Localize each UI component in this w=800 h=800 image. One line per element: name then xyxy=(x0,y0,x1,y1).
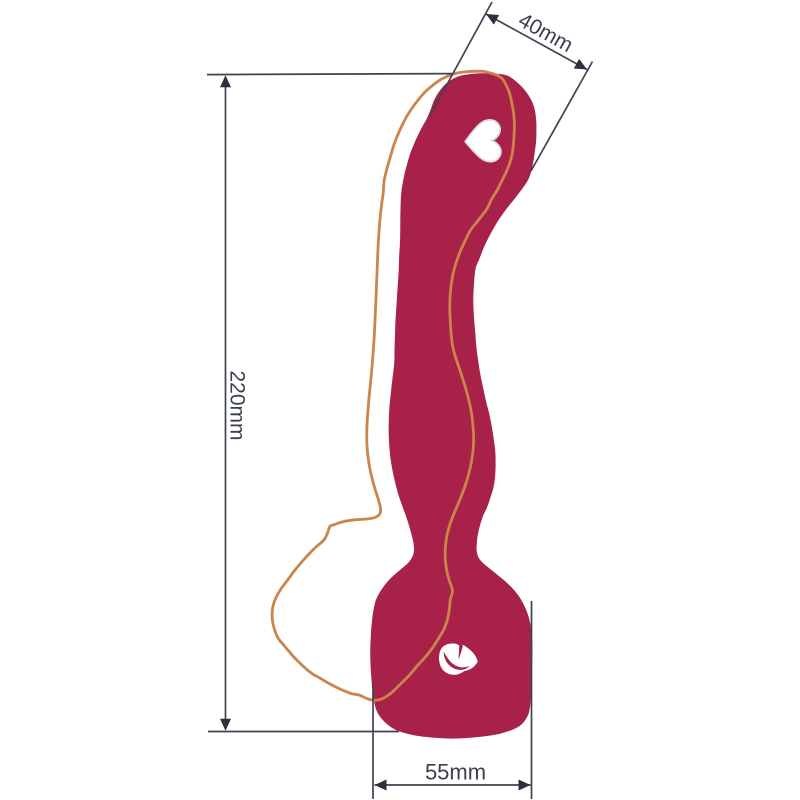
svg-text:220mm: 220mm xyxy=(226,370,249,440)
svg-text:55mm: 55mm xyxy=(425,760,486,785)
